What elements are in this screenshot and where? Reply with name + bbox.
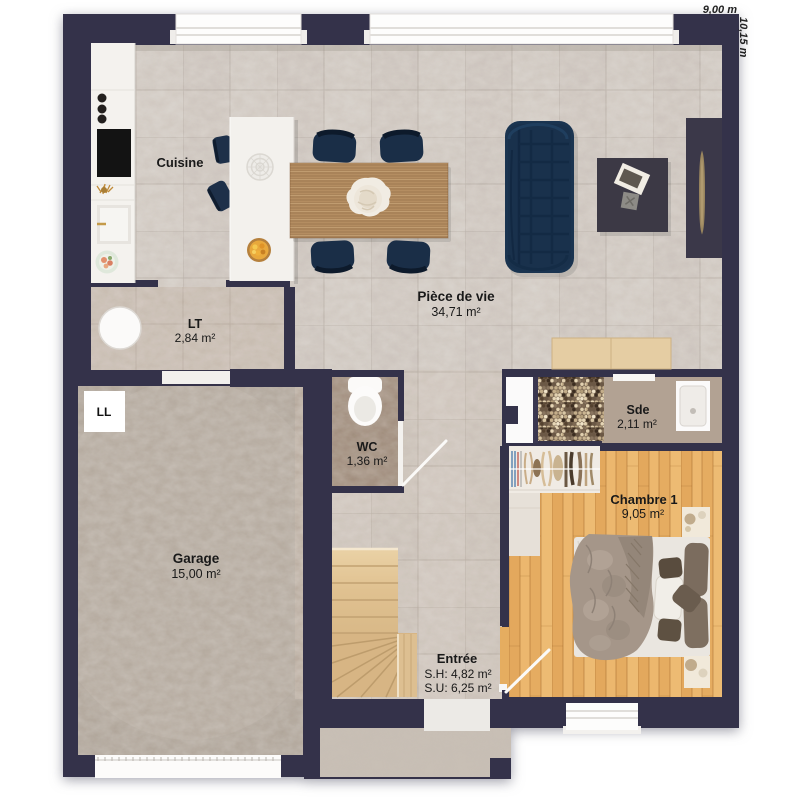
svg-text:S.H: 4,82 m²: S.H: 4,82 m² bbox=[424, 667, 491, 681]
svg-text:2,84 m²: 2,84 m² bbox=[175, 331, 216, 345]
svg-text:Entrée: Entrée bbox=[437, 651, 477, 666]
svg-text:S.U: 6,25 m²: S.U: 6,25 m² bbox=[424, 681, 491, 695]
svg-text:Cuisine: Cuisine bbox=[157, 155, 204, 170]
svg-text:1,36 m²: 1,36 m² bbox=[347, 454, 388, 468]
svg-text:10,15 m: 10,15 m bbox=[737, 17, 749, 58]
svg-text:LL: LL bbox=[97, 405, 112, 419]
svg-text:2,11 m²: 2,11 m² bbox=[617, 417, 657, 431]
svg-text:WC: WC bbox=[357, 440, 378, 454]
svg-text:9,05 m²: 9,05 m² bbox=[622, 507, 664, 521]
svg-text:9,00 m: 9,00 m bbox=[703, 4, 737, 16]
svg-text:Garage: Garage bbox=[173, 551, 220, 566]
svg-text:LT: LT bbox=[188, 317, 203, 331]
svg-text:Sde: Sde bbox=[627, 403, 650, 417]
svg-text:34,71 m²: 34,71 m² bbox=[431, 305, 480, 319]
svg-text:Pièce de vie: Pièce de vie bbox=[417, 289, 495, 304]
svg-text:15,00 m²: 15,00 m² bbox=[171, 567, 220, 581]
svg-text:Chambre 1: Chambre 1 bbox=[610, 492, 677, 507]
